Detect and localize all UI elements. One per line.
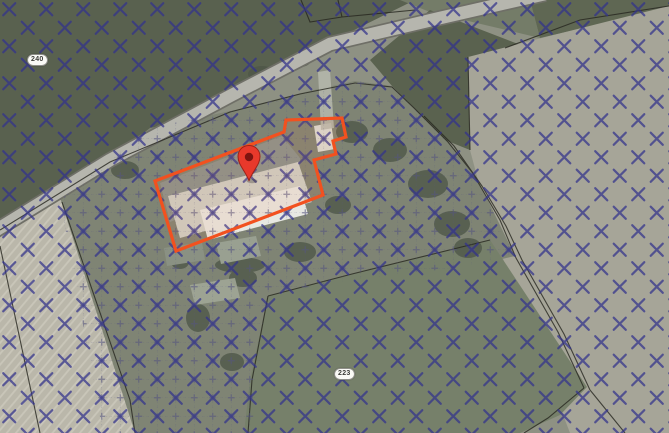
cadastral-cross-hatch-overlay	[0, 0, 669, 433]
parcel-number-badge: 223	[334, 368, 355, 380]
map-canvas[interactable]: 240 223	[0, 0, 669, 433]
marker-hole	[245, 153, 253, 161]
aerial-map	[0, 0, 669, 433]
parcel-number-badge: 240	[27, 54, 48, 66]
